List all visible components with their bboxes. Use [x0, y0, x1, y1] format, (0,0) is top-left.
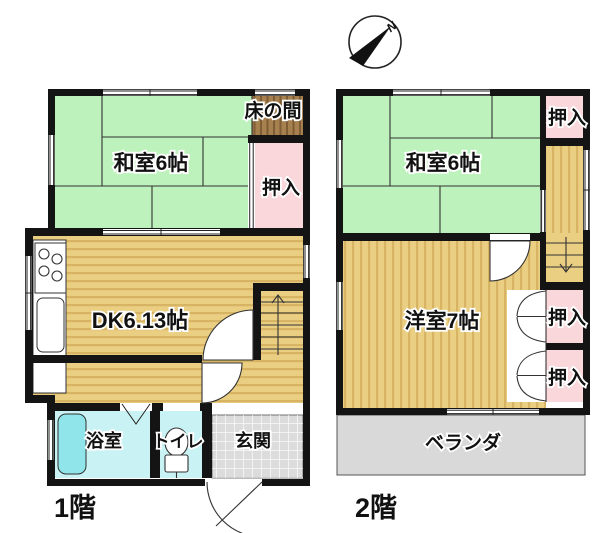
wall-segment [47, 479, 310, 486]
window [103, 90, 197, 96]
wall-segment [540, 233, 546, 290]
floor1-entrance-label: 玄関 [235, 430, 271, 451]
veranda-label: ベランダ [425, 431, 501, 454]
window [337, 140, 343, 188]
window [393, 90, 490, 96]
floor1-title: 1階 [54, 493, 96, 523]
floor1-bath-label: 浴室 [86, 430, 122, 451]
floor2-plan: 和室6帖 押入 洋室7帖 押入 押入 ベランダ 2階 [336, 89, 590, 523]
floor1-plan: 和室6帖 床の間 押入 DK6.13帖 浴室 トイレ 玄関 1階 [25, 89, 310, 533]
wall-segment [540, 138, 590, 146]
floor2-oshiire-bottom-label: 押入 [548, 366, 586, 389]
wall-segment [540, 282, 590, 290]
window [48, 420, 54, 460]
corridor-texture [546, 146, 583, 233]
wall-segment [336, 89, 343, 415]
window [337, 282, 343, 330]
floor1-oshiire-label: 押入 [262, 176, 300, 199]
window [304, 245, 310, 278]
wall-segment [248, 135, 310, 143]
floor2-oshiire-mid-label: 押入 [548, 306, 586, 329]
window [255, 90, 295, 96]
wall-segment [253, 283, 261, 360]
entrance-step [212, 403, 303, 415]
closet-door-zone [507, 290, 546, 402]
floor1-washitsu-label: 和室6帖 [114, 151, 189, 175]
floorplan-image: 和室6帖 床の間 押入 DK6.13帖 浴室 トイレ 玄関 1階 [0, 0, 612, 533]
sink-icon [37, 298, 64, 352]
wall-segment [202, 403, 212, 478]
wall-segment [25, 355, 202, 363]
floor1-toilet-label: トイレ [153, 432, 204, 451]
wall-segment [540, 343, 590, 350]
kitchen-counter [33, 240, 66, 393]
floor2-title: 2階 [355, 493, 397, 523]
front-door-leaf [216, 482, 262, 526]
floor1-dk-label: DK6.13帖 [92, 308, 189, 333]
floor1-tokonoma-label: 床の間 [244, 99, 301, 122]
wall-segment [583, 89, 590, 415]
floor2-western-room-label: 洋室7帖 [405, 309, 480, 333]
wall-segment [253, 283, 310, 291]
compass: N [349, 16, 401, 68]
floor2-stairwell [546, 233, 583, 282]
floor2-oshiire-top-label: 押入 [548, 106, 586, 129]
bathtub-icon [58, 414, 86, 474]
floor2-washitsu-label: 和室6帖 [406, 151, 481, 175]
toilet-door-opening [163, 403, 200, 411]
window [584, 150, 590, 230]
window [49, 135, 55, 185]
window [26, 256, 32, 330]
